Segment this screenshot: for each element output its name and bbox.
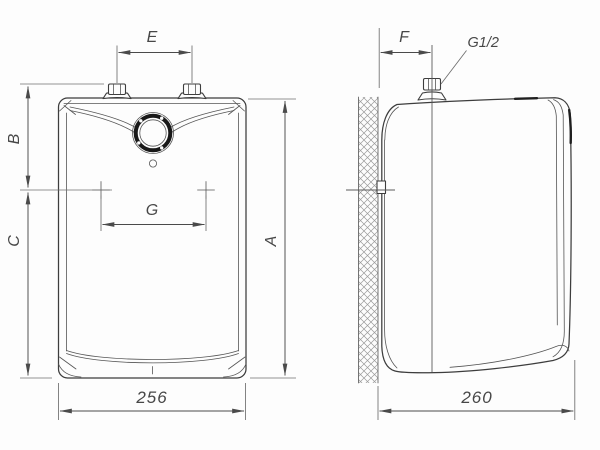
front-view bbox=[59, 84, 247, 378]
thread-label: G1/2 bbox=[468, 35, 499, 51]
side-dimensions: F G1/2 260 bbox=[378, 28, 575, 420]
dim-label-f: F bbox=[399, 29, 410, 46]
dimension-f: F bbox=[379, 28, 430, 88]
wall-section bbox=[359, 97, 379, 383]
dim-label-c: C bbox=[6, 235, 23, 247]
dimension-a: A bbox=[248, 99, 296, 378]
dim-label-width: 256 bbox=[135, 388, 167, 407]
pipe-connection-left bbox=[103, 84, 131, 99]
dim-label-depth: 260 bbox=[460, 388, 492, 407]
dimension-g: G bbox=[101, 196, 206, 232]
dim-label-g: G bbox=[146, 202, 158, 219]
front-dimensions: E B C G A bbox=[6, 29, 296, 420]
side-view bbox=[346, 45, 571, 383]
pipe-connection-right bbox=[178, 84, 206, 99]
control-knob bbox=[133, 113, 174, 154]
thread-callout: G1/2 bbox=[441, 35, 499, 84]
dim-label-b: B bbox=[6, 133, 23, 144]
drawing-page: E B C G A bbox=[0, 0, 600, 450]
dimension-e: E bbox=[117, 29, 192, 83]
dimension-depth-260: 260 bbox=[378, 360, 575, 420]
side-body-outline bbox=[382, 98, 571, 373]
dimension-width-256: 256 bbox=[59, 383, 246, 420]
bottom-panel bbox=[59, 351, 247, 378]
technical-drawing: E B C G A bbox=[0, 0, 600, 450]
dim-label-e: E bbox=[147, 29, 158, 46]
dimension-c: C bbox=[6, 193, 52, 379]
dim-label-a: A bbox=[263, 236, 280, 248]
wall-hatch bbox=[359, 97, 379, 383]
front-body-outline bbox=[59, 98, 247, 378]
indicator-hole bbox=[149, 160, 156, 167]
